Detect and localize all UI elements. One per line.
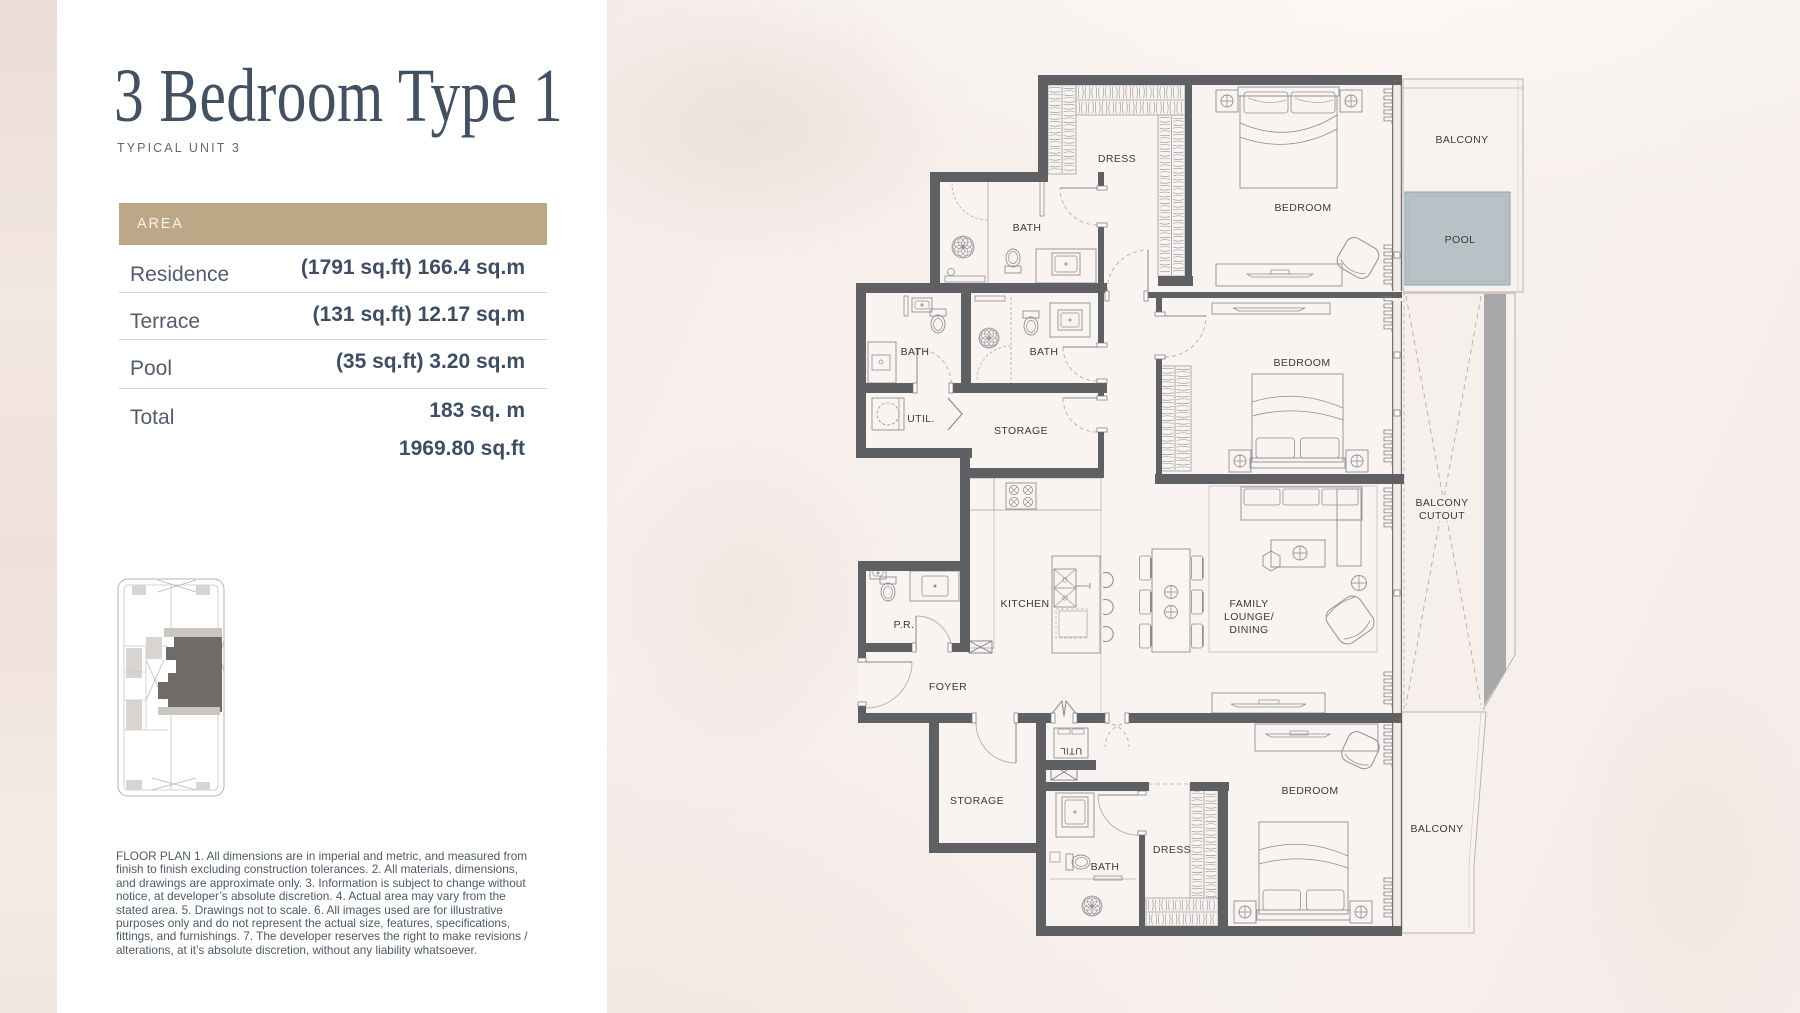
svg-text:FAMILY: FAMILY	[1230, 598, 1269, 610]
svg-text:UTIL: UTIL	[1060, 745, 1082, 756]
svg-text:BALCONY: BALCONY	[1436, 134, 1489, 146]
svg-text:BEDROOM: BEDROOM	[1281, 785, 1338, 797]
svg-text:LOUNGE/: LOUNGE/	[1224, 611, 1274, 623]
svg-text:BEDROOM: BEDROOM	[1274, 202, 1331, 214]
svg-text:DRESS: DRESS	[1153, 844, 1191, 856]
svg-text:BATH: BATH	[1030, 346, 1059, 358]
svg-text:BATH: BATH	[1091, 861, 1120, 873]
svg-text:BATH: BATH	[901, 346, 930, 358]
svg-text:BEDROOM: BEDROOM	[1273, 357, 1330, 369]
svg-text:DINING: DINING	[1229, 624, 1268, 636]
svg-text:STORAGE: STORAGE	[994, 425, 1048, 437]
svg-text:DRESS: DRESS	[1098, 153, 1136, 165]
svg-text:STORAGE: STORAGE	[950, 795, 1004, 807]
svg-text:UTIL.: UTIL.	[907, 413, 935, 425]
svg-text:FOYER: FOYER	[929, 681, 967, 693]
svg-text:BALCONY: BALCONY	[1416, 497, 1469, 509]
svg-text:POOL: POOL	[1445, 234, 1476, 246]
svg-text:KITCHEN: KITCHEN	[1001, 598, 1050, 610]
svg-text:BATH: BATH	[1013, 222, 1042, 234]
svg-text:BALCONY: BALCONY	[1411, 823, 1464, 835]
svg-text:P.R.: P.R.	[894, 619, 915, 631]
svg-text:CUTOUT: CUTOUT	[1419, 510, 1465, 522]
